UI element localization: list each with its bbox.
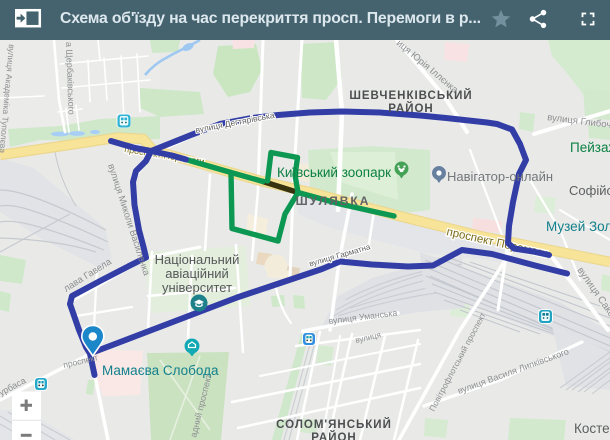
svg-text:Навігатор-онлайн: Навігатор-онлайн [447,169,553,184]
svg-text:Мамаєва Слобода: Мамаєва Слобода [102,363,219,378]
svg-text:Пейзаж: Пейзаж [570,140,610,155]
svg-text:авіаційний: авіаційний [165,266,229,281]
svg-text:Національний: Національний [155,252,240,267]
svg-text:Косте: Косте [574,421,610,436]
svg-text:університет: університет [162,280,232,295]
svg-text:РАЙОН: РАЙОН [388,102,433,115]
svg-text:Софійс: Софійс [569,183,610,198]
svg-text:Музей Зол: Музей Зол [546,219,610,234]
svg-text:РАЙОН: РАЙОН [311,431,356,440]
svg-text:Київський зоопарк: Київський зоопарк [277,165,391,180]
svg-text:СОЛОМ'ЯНСЬКИЙ: СОЛОМ'ЯНСЬКИЙ [276,418,392,431]
svg-text:ШУЛЯВКА: ШУЛЯВКА [296,194,371,208]
